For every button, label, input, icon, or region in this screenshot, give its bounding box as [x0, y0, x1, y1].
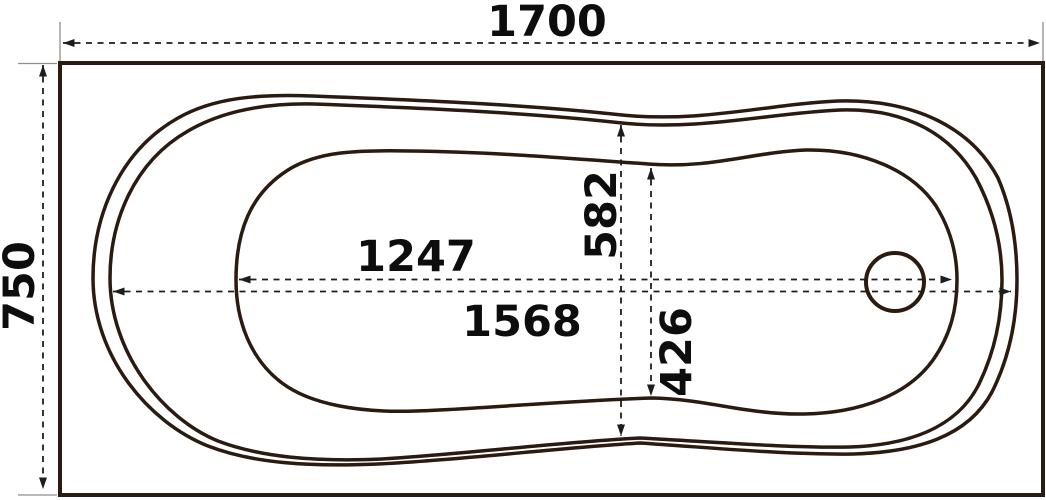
dim-label-basin-waist-width: 426: [652, 307, 702, 397]
drain-circle: [866, 253, 924, 311]
dim-label-rim-waist-width: 582: [577, 170, 627, 260]
dim-label-overall-width: 750: [0, 241, 45, 331]
dim-label-overall-length: 1700: [487, 0, 607, 47]
drawing-canvas: 1700 750 1247 1568 582 426: [0, 0, 1046, 500]
bathtub-technical-drawing: 1700 750 1247 1568 582 426: [0, 0, 1046, 500]
dim-label-rim-inner-length: 1568: [462, 297, 582, 347]
dim-label-basin-length: 1247: [356, 232, 476, 282]
